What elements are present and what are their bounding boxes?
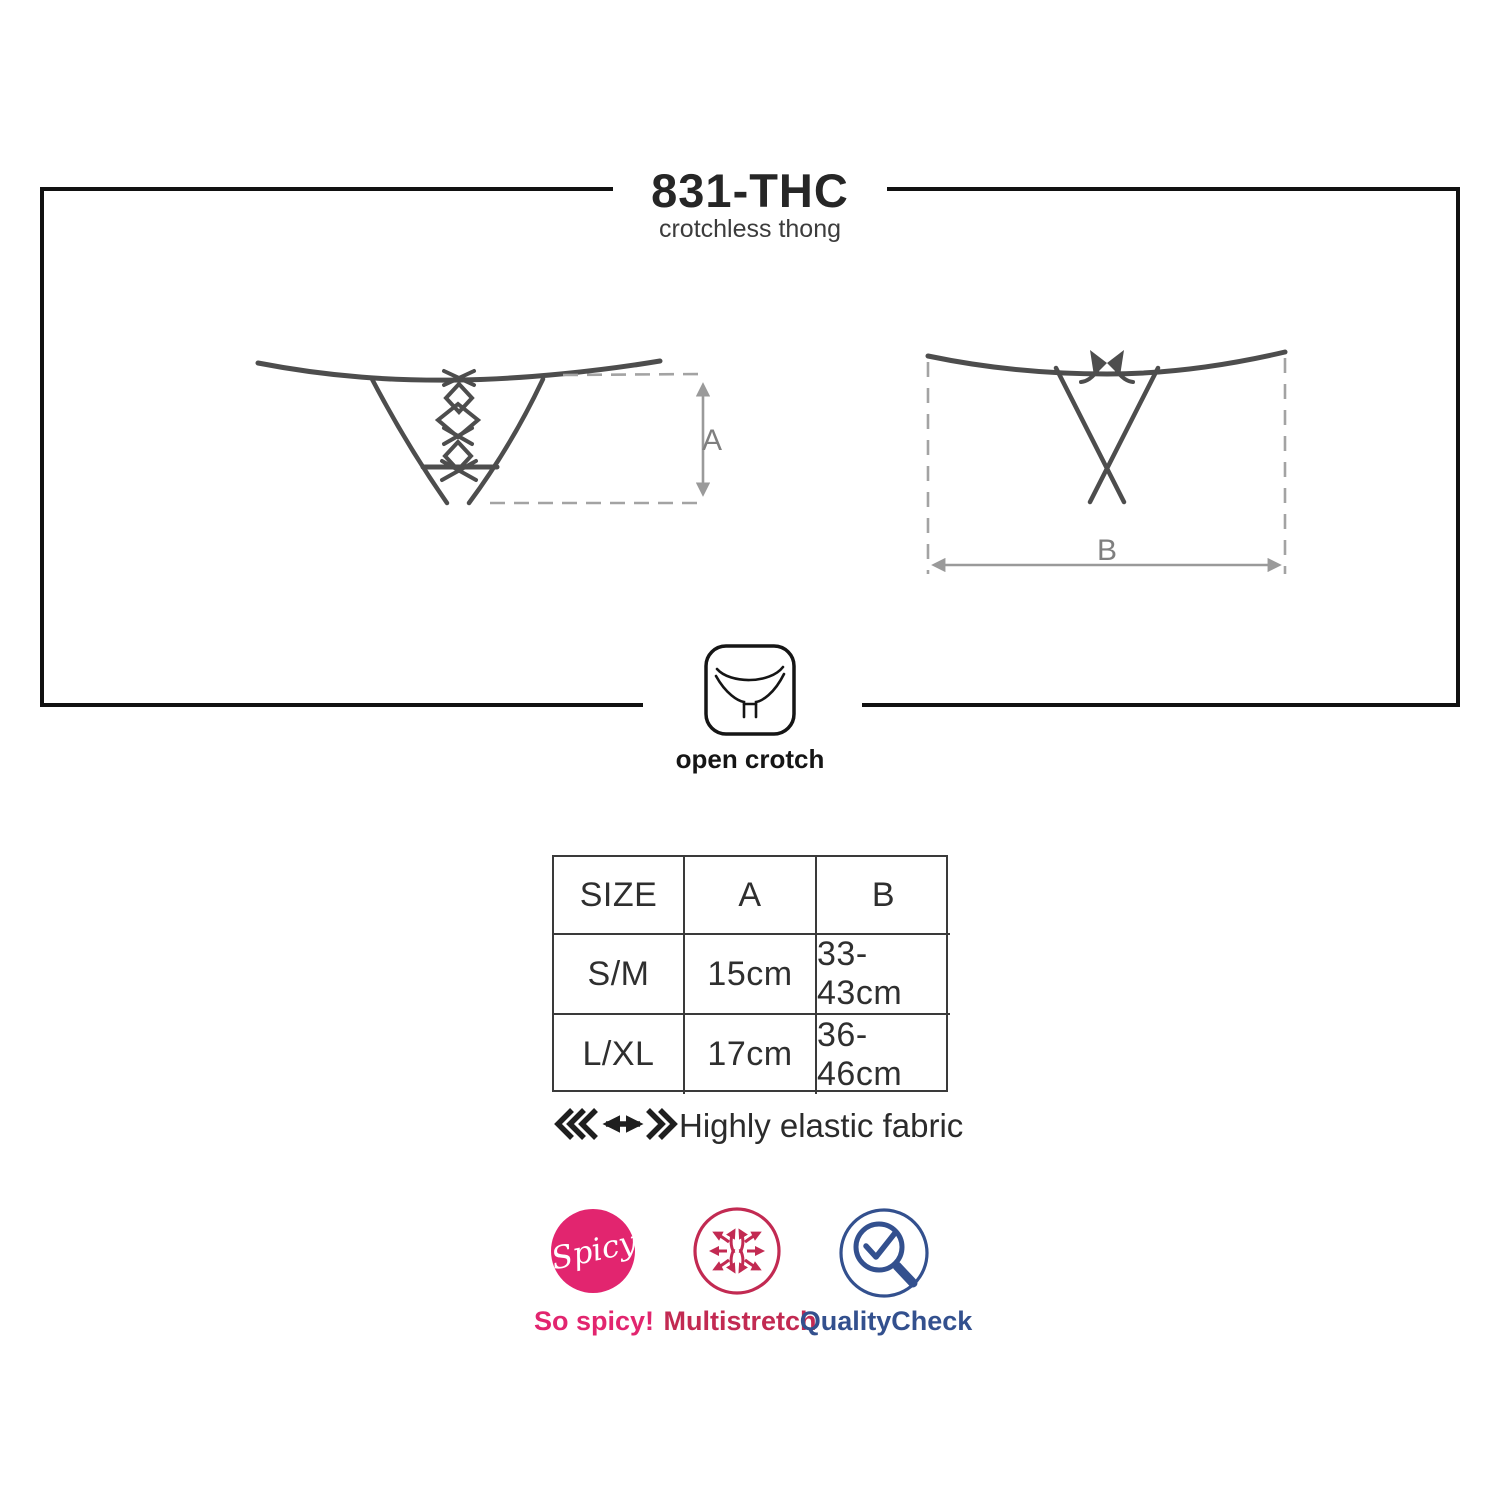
- size-table-header-size: SIZE: [554, 857, 685, 935]
- size-table-header-a: A: [685, 857, 817, 935]
- product-size-chart-page: 831-THC crotchless thong A B open crotch…: [0, 0, 1500, 1500]
- dimension-a-label: A: [692, 424, 732, 458]
- table-row-lxl-b: 36-46cm: [817, 1015, 950, 1094]
- size-table-header-b: B: [817, 857, 950, 935]
- elastic-arrows-icon: [558, 1110, 674, 1138]
- product-subtitle: crotchless thong: [500, 215, 1000, 244]
- table-row-sm-a: 15cm: [685, 935, 817, 1015]
- lacing-detail: [423, 371, 497, 480]
- table-row-lxl-size: L/XL: [554, 1015, 685, 1094]
- bow-icon: [1081, 350, 1133, 382]
- dimension-a-lines: [490, 374, 703, 503]
- multistretch-arrows-icon: [695, 1209, 779, 1293]
- open-crotch-label: open crotch: [650, 744, 850, 775]
- quality-check-label: QualityCheck: [796, 1306, 976, 1337]
- dimension-b-label: B: [1087, 534, 1127, 568]
- frame-border: [40, 187, 1460, 707]
- product-title: 831-THC: [500, 163, 1000, 218]
- size-table: SIZE A B S/M 15cm 33-43cm L/XL 17cm 36-4…: [552, 855, 948, 1092]
- elastic-fabric-label: Highly elastic fabric: [679, 1107, 1099, 1145]
- quality-check-magnifier-icon: [841, 1210, 927, 1296]
- table-row-sm-b: 33-43cm: [817, 935, 950, 1015]
- table-row-lxl-a: 17cm: [685, 1015, 817, 1094]
- front-view-drawing: [258, 361, 660, 503]
- table-row-sm-size: S/M: [554, 935, 685, 1015]
- back-view-drawing: [928, 350, 1285, 502]
- open-crotch-icon: [706, 646, 794, 734]
